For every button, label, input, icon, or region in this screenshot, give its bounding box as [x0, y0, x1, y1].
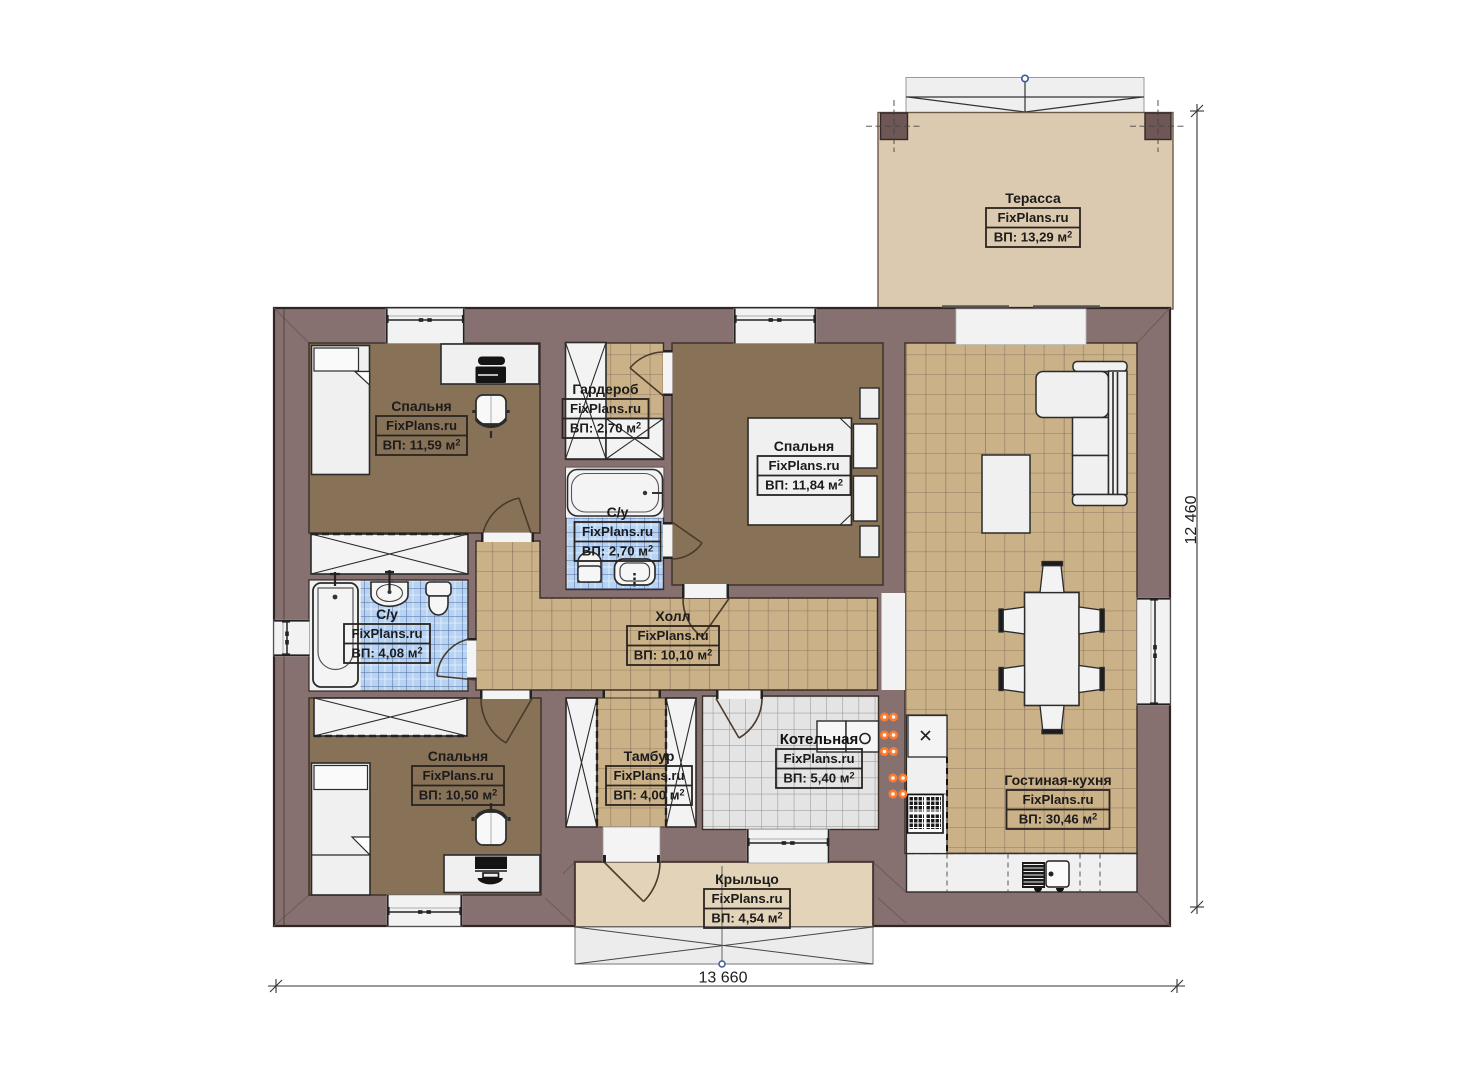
svg-text:ВП: 10,50 м2: ВП: 10,50 м2: [419, 788, 498, 803]
svg-text:Гардероб: Гардероб: [572, 381, 639, 397]
svg-text:FixPlans.ru: FixPlans.ru: [582, 524, 653, 539]
svg-text:FixPlans.ru: FixPlans.ru: [613, 768, 684, 783]
svg-text:FixPlans.ru: FixPlans.ru: [1022, 792, 1093, 807]
svg-text:FixPlans.ru: FixPlans.ru: [768, 458, 839, 473]
svg-text:FixPlans.ru: FixPlans.ru: [783, 751, 854, 766]
svg-text:Спальня: Спальня: [428, 748, 488, 764]
svg-text:Холл: Холл: [655, 608, 690, 624]
svg-text:ВП: 2,70 м2: ВП: 2,70 м2: [582, 544, 653, 559]
svg-text:FixPlans.ru: FixPlans.ru: [422, 768, 493, 783]
svg-text:13 660: 13 660: [699, 970, 748, 987]
svg-text:Спальня: Спальня: [774, 438, 834, 454]
svg-text:ВП: 11,59 м2: ВП: 11,59 м2: [383, 438, 461, 453]
svg-text:FixPlans.ru: FixPlans.ru: [637, 628, 708, 643]
svg-text:Терасса: Терасса: [1005, 190, 1061, 206]
svg-text:Тамбур: Тамбур: [624, 748, 675, 764]
svg-text:С/у: С/у: [607, 504, 629, 520]
svg-text:ВП: 4,54 м2: ВП: 4,54 м2: [711, 911, 782, 926]
svg-text:ВП: 2,70 м2: ВП: 2,70 м2: [570, 421, 641, 436]
svg-text:FixPlans.ru: FixPlans.ru: [997, 210, 1068, 225]
svg-text:ВП: 30,46 м2: ВП: 30,46 м2: [1019, 812, 1098, 827]
svg-text:Крыльцо: Крыльцо: [715, 871, 779, 887]
svg-text:С/у: С/у: [376, 606, 398, 622]
svg-text:Гостиная-кухня: Гостиная-кухня: [1004, 772, 1111, 788]
svg-text:ВП: 5,40 м2: ВП: 5,40 м2: [783, 771, 854, 786]
svg-text:Спальня: Спальня: [391, 398, 451, 414]
svg-text:FixPlans.ru: FixPlans.ru: [351, 626, 422, 641]
svg-text:ВП: 13,29 м2: ВП: 13,29 м2: [994, 230, 1073, 245]
svg-text:ВП: 10,10 м2: ВП: 10,10 м2: [634, 648, 713, 663]
svg-text:FixPlans.ru: FixPlans.ru: [570, 401, 641, 416]
svg-text:ВП: 11,84 м2: ВП: 11,84 м2: [765, 478, 843, 493]
svg-text:FixPlans.ru: FixPlans.ru: [386, 418, 457, 433]
svg-text:ВП: 4,08 м2: ВП: 4,08 м2: [351, 646, 422, 661]
svg-text:Котельная: Котельная: [780, 731, 859, 748]
svg-text:FixPlans.ru: FixPlans.ru: [711, 891, 782, 906]
svg-text:ВП: 4,00 м2: ВП: 4,00 м2: [613, 788, 684, 803]
svg-text:12 460: 12 460: [1183, 495, 1200, 544]
